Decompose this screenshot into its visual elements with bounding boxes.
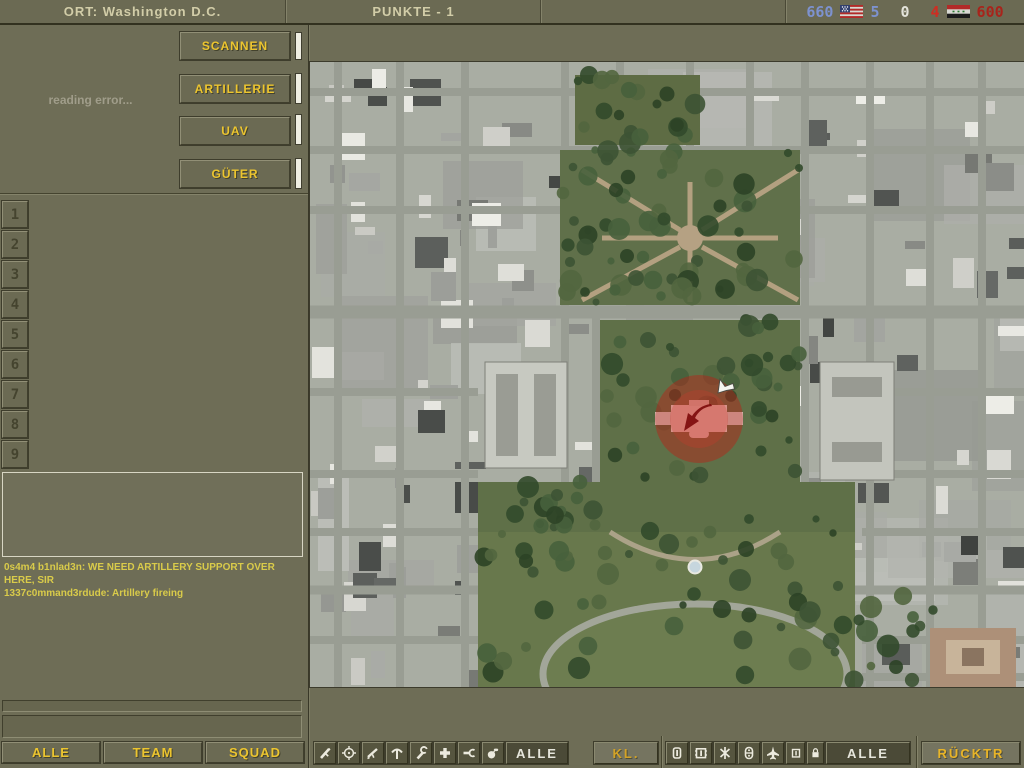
commander-panel: reading error... SCANNEN ARTILLERIE UAV … [0,25,308,768]
channel-squad-button[interactable]: SQUAD [206,742,304,763]
wrench-icon[interactable] [410,742,432,764]
scan-charge-bar [295,32,302,60]
pickaxe-icon[interactable] [386,742,408,764]
artillery-button[interactable]: ARTILLERIE [180,75,290,103]
slot-button-9[interactable]: 9 [2,441,28,468]
slot-button-6[interactable]: 6 [2,351,28,378]
points-label: PUNKTE - 1 [287,0,540,23]
slot-button-8[interactable]: 8 [2,411,28,438]
uav-button[interactable]: UAV [180,117,290,145]
channel-team-button[interactable]: TEAM [104,742,202,763]
vehicle-filter-all-button[interactable]: ALLE [826,742,910,764]
carbine-icon[interactable] [362,742,384,764]
infantry-icon[interactable] [714,742,736,764]
grenade-icon[interactable] [482,742,504,764]
slot-button-3[interactable]: 3 [2,261,28,288]
slot-button-4[interactable]: 4 [2,291,28,318]
mid-score: 0 [900,3,909,21]
commander-screen: { "top_bar": { "ort": "ORT: Washington D… [0,0,1024,768]
scoreboard: 660 5 0 4 600 [786,0,1024,23]
chat-message: 1337c0mmand3rdude: Artillery fireing [4,587,304,600]
panel-divider [0,193,308,195]
toolbar-divider [916,736,918,768]
satellite-map[interactable] [310,62,1024,687]
status-message: reading error... [8,93,173,107]
iraq-flag-icon [947,5,970,18]
chat-history-box [2,472,303,557]
slot-button-7[interactable]: 7 [2,381,28,408]
supplies-button[interactable]: GÜTER [180,160,290,188]
sniper-scope-icon[interactable] [338,742,360,764]
iraq-score: 600 [977,3,1004,21]
supplies-charge-bar [295,158,302,189]
slot-button-5[interactable]: 5 [2,321,28,348]
topbar-divider [540,0,542,23]
chat-message: 0s4m4 b1nlad3n: WE NEED ARTILLERY SUPPOR… [4,561,304,587]
tank-icon[interactable] [690,742,712,764]
location-label: ORT: Washington D.C. [0,0,285,23]
rifle-icon[interactable] [314,742,336,764]
toolbar-divider [661,736,663,768]
slot-button-1[interactable]: 1 [2,201,28,228]
us-flag-icon [840,5,863,18]
aircraft-icon[interactable] [762,742,784,764]
medic-cross-icon[interactable] [434,742,456,764]
top-status-bar: ORT: Washington D.C. PUNKTE - 1 660 5 0 … [0,0,1024,25]
scan-button[interactable]: SCANNEN [180,32,290,60]
chat-input-strip[interactable] [2,700,302,712]
artillery-icon[interactable] [786,742,805,764]
iraq-tickets: 4 [931,3,940,21]
class-filter-button[interactable]: KL. [594,742,658,764]
lock-icon[interactable] [807,742,824,764]
chat-messages: 0s4m4 b1nlad3n: WE NEED ARTILLERY SUPPOR… [4,561,304,600]
apc-icon[interactable] [738,742,760,764]
us-tickets: 5 [870,3,879,21]
soldier-icon[interactable] [666,742,688,764]
channel-all-button[interactable]: ALLE [2,742,100,763]
uav-charge-bar [295,114,302,145]
back-button[interactable]: RÜCKTR [922,742,1020,764]
slot-button-2[interactable]: 2 [2,231,28,258]
spanner-icon[interactable] [458,742,480,764]
chat-input-field[interactable] [2,715,302,738]
artillery-charge-bar [295,73,302,104]
map-view[interactable] [310,62,1024,687]
us-score: 660 [806,3,833,21]
kit-filter-all-button[interactable]: ALLE [506,742,568,764]
